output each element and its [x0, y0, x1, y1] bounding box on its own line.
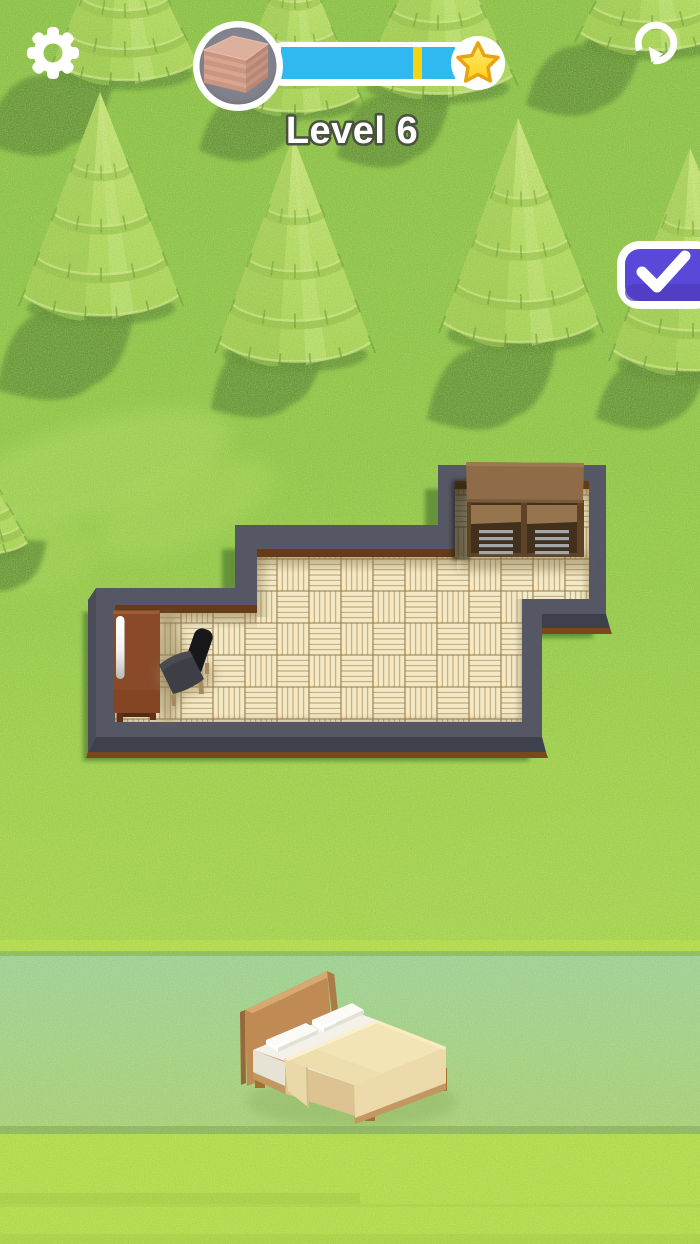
svg-text:Level 6: Level 6 — [286, 110, 418, 152]
